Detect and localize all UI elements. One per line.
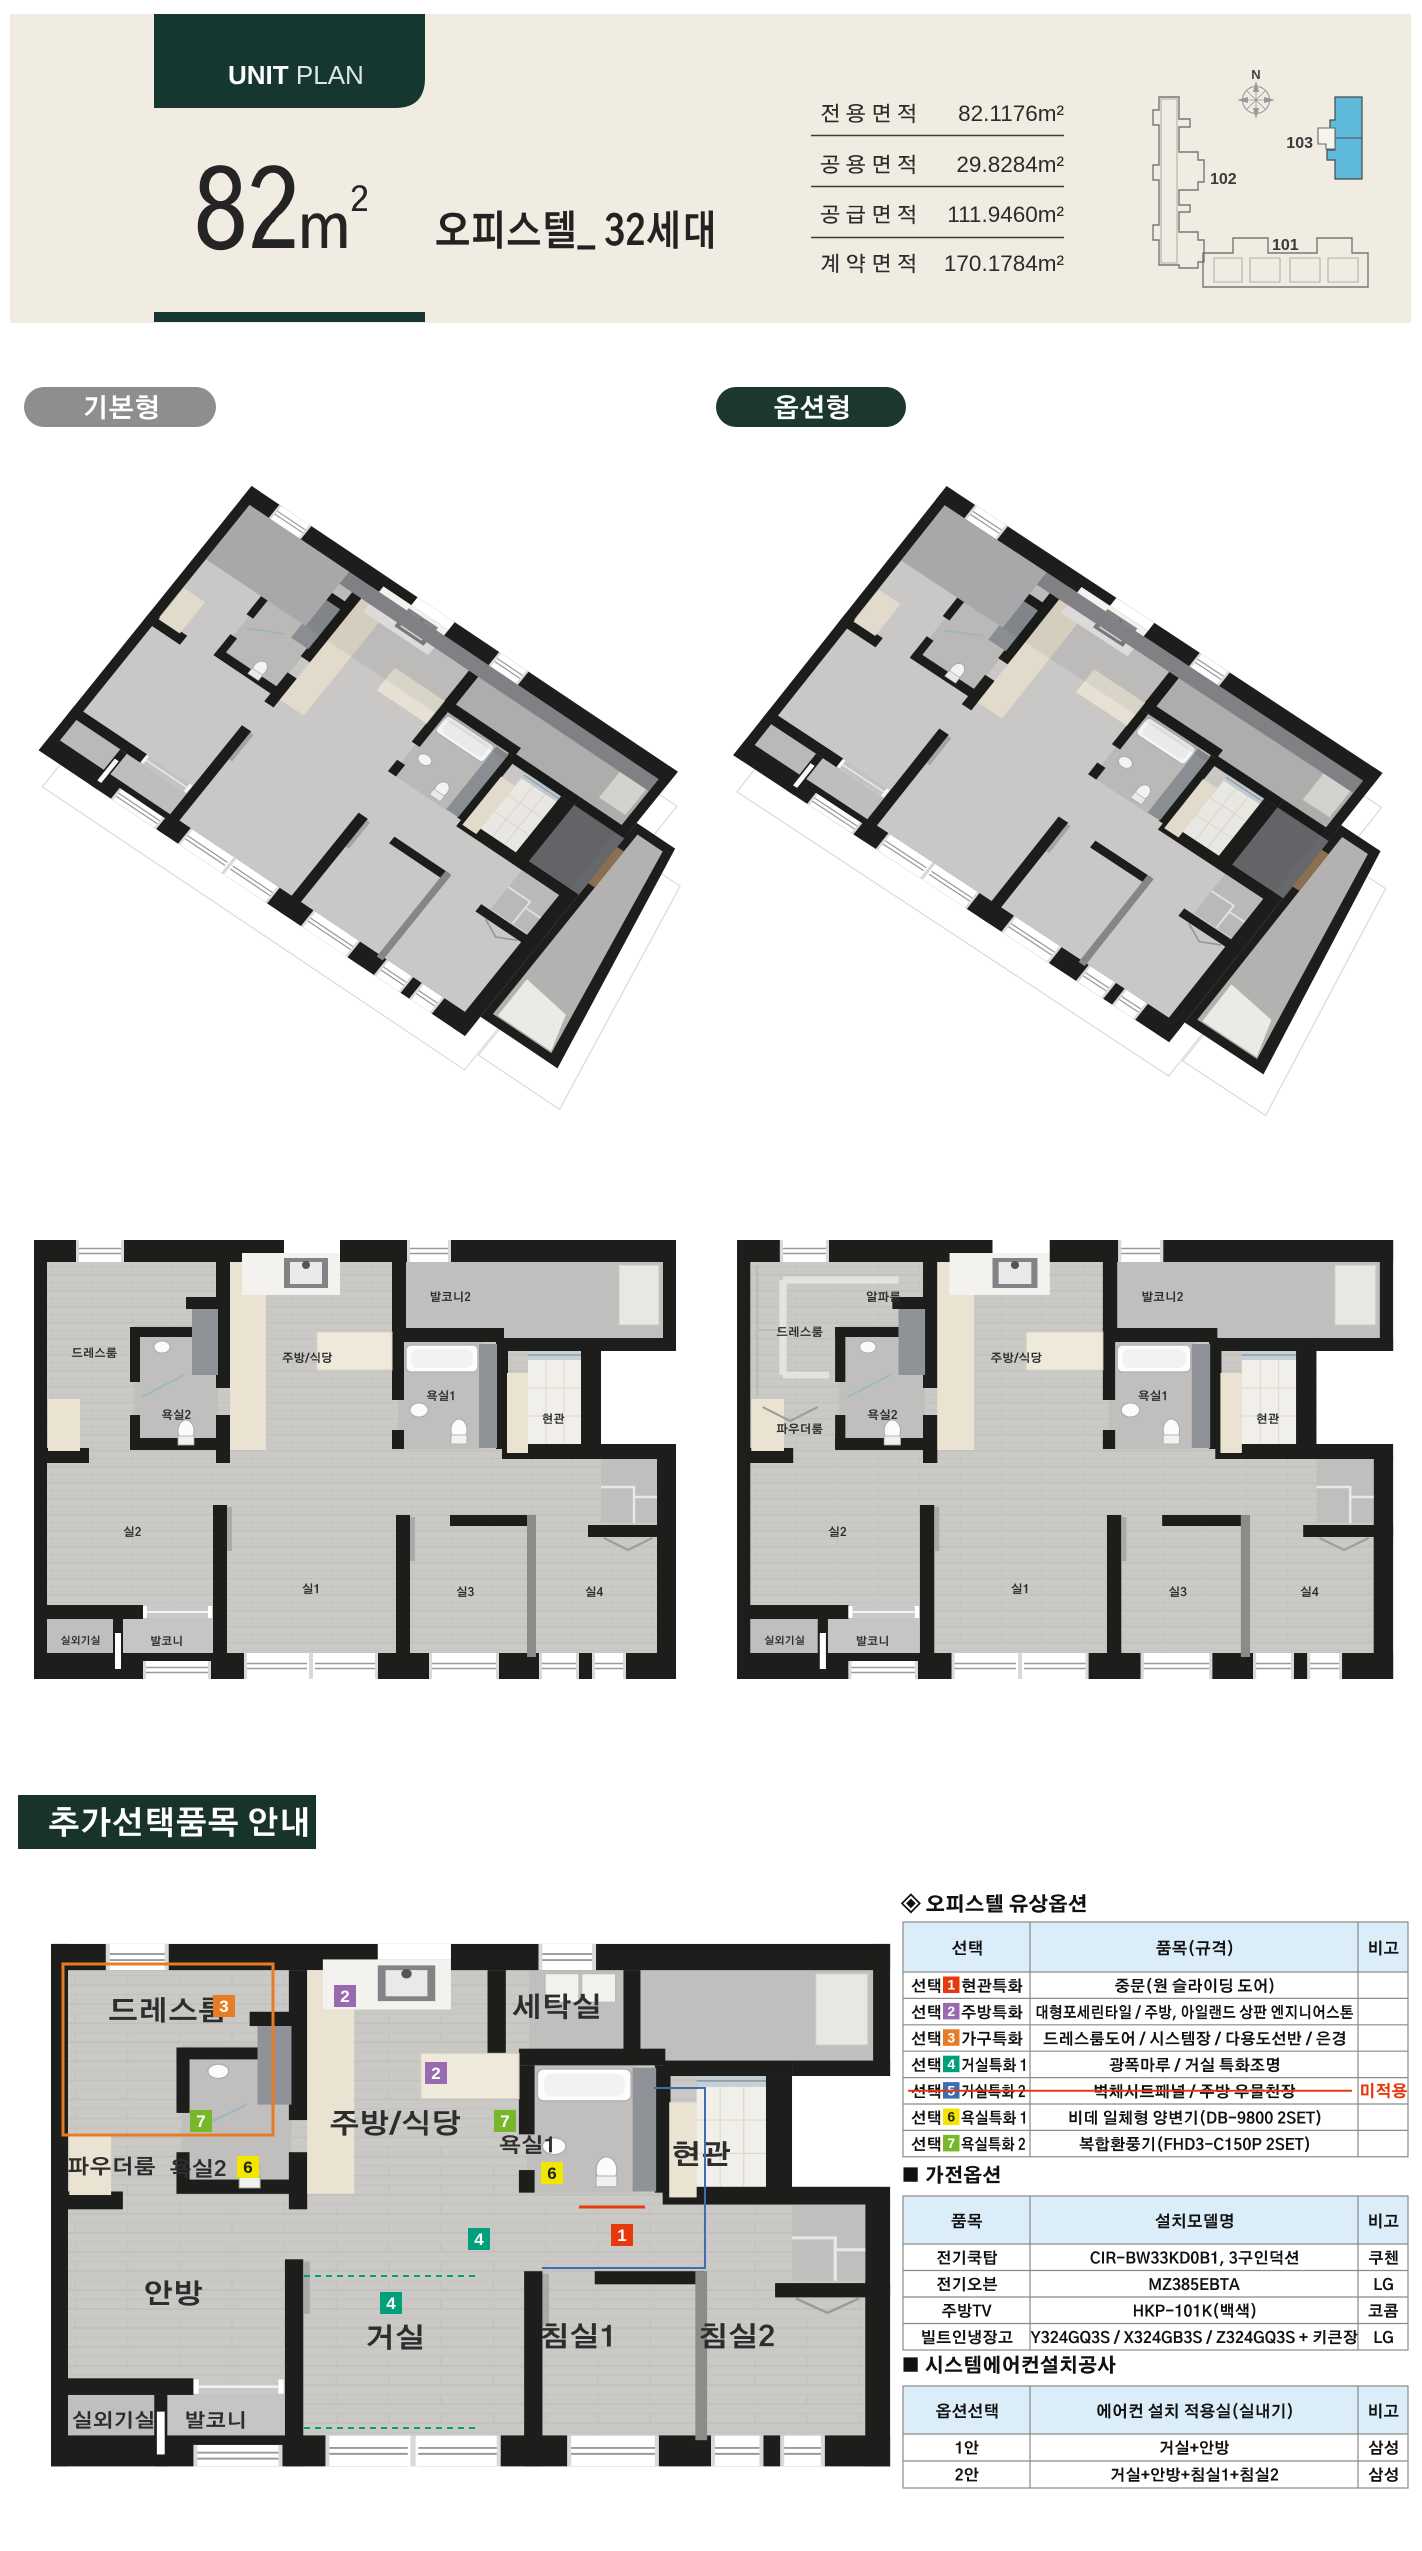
svg-text:UNIT PLAN: UNIT PLAN [228, 60, 364, 90]
svg-text:4: 4 [474, 2230, 484, 2249]
svg-text:3: 3 [947, 2030, 955, 2046]
svg-text:1: 1 [947, 1977, 955, 1993]
svg-text:101: 101 [1272, 237, 1299, 254]
svg-text:2: 2 [431, 2064, 440, 2083]
svg-text:N: N [1251, 67, 1260, 82]
svg-text:29.8284m²: 29.8284m² [956, 152, 1064, 177]
svg-text:6: 6 [243, 2158, 252, 2177]
svg-text:7: 7 [947, 2135, 955, 2151]
svg-text:4: 4 [386, 2294, 396, 2313]
svg-text:111.9460m²: 111.9460m² [947, 202, 1064, 227]
svg-text:4: 4 [947, 2056, 955, 2072]
svg-text:82.1176m²: 82.1176m² [958, 101, 1064, 126]
svg-text:170.1784m²: 170.1784m² [944, 251, 1065, 276]
svg-text:7: 7 [500, 2112, 509, 2131]
svg-text:2: 2 [340, 1987, 349, 2006]
svg-text:103: 103 [1286, 135, 1313, 152]
svg-text:1: 1 [617, 2226, 626, 2245]
svg-text:102: 102 [1210, 171, 1237, 188]
svg-text:6: 6 [947, 2109, 955, 2125]
svg-text:3: 3 [219, 1997, 228, 2016]
svg-text:6: 6 [547, 2164, 556, 2183]
svg-text:7: 7 [196, 2112, 205, 2131]
svg-text:2: 2 [947, 2003, 955, 2019]
